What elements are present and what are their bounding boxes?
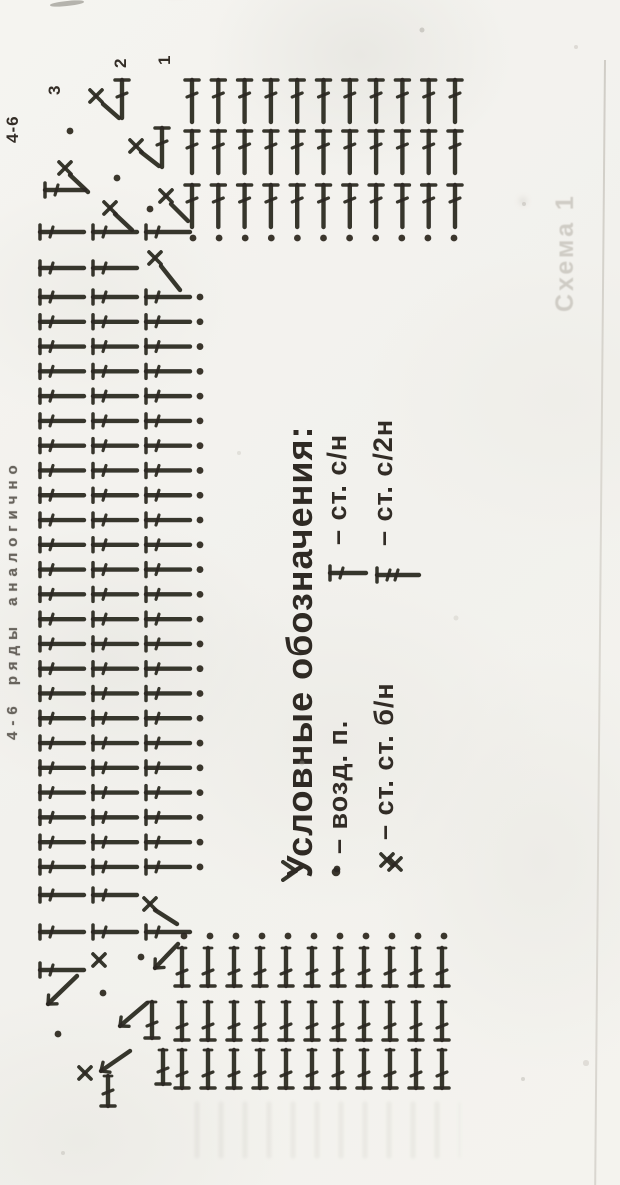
legend-entry-chain-label: – возд. п. — [325, 720, 352, 854]
paper-speckles — [0, 0, 2, 2]
reverse-side-bleed — [195, 1102, 460, 1158]
row-number-2: 2 — [112, 59, 129, 68]
legend-entry-dc-label: – ст. с/н — [324, 434, 351, 545]
stitch-symbols-layer — [40, 80, 462, 1106]
row-number-1: 1 — [156, 56, 173, 65]
scanned-crochet-pattern-page: 4-6 3 2 1 4-6 ряды аналогично Условные о… — [0, 0, 620, 1185]
legend-entry-tr-label: – ст. с/2н — [370, 419, 397, 546]
ghost-bleed-text: Схема 1 — [553, 193, 578, 312]
legend-title: Условные обозначения: — [282, 426, 318, 878]
legend-entry-sc-label: – ст. ст. б/н — [371, 682, 398, 840]
rows-4-6-similar-note: 4-6 ряды аналогично — [5, 459, 20, 740]
rows-4-6-label: 4-6 — [4, 115, 21, 143]
row-number-3: 3 — [46, 86, 63, 95]
